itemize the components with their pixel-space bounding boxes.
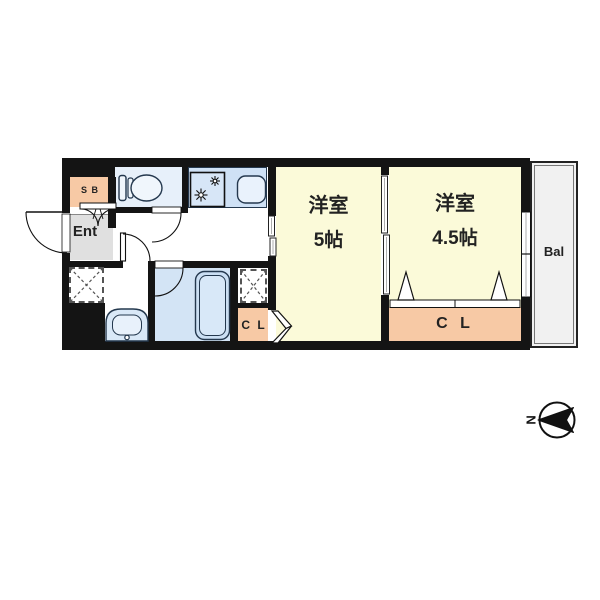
room-45-size: 4.5帖 xyxy=(389,229,521,248)
stove-icon xyxy=(191,173,225,207)
room-45-name: 洋室 xyxy=(389,194,521,214)
washbasin-icon xyxy=(106,309,148,341)
toilet-door-swing-icon xyxy=(152,207,181,242)
floor-plan: N S B Ent 洋室 5帖 洋室 4.5帖 C L C L Bal xyxy=(0,0,600,600)
room-5-size: 5帖 xyxy=(276,231,381,250)
room-5-name: 洋室 xyxy=(276,196,381,216)
plan-symbols-layer: N xyxy=(0,0,600,600)
shoe-box-label: S B xyxy=(68,186,112,195)
washing-machine-x-icon xyxy=(70,268,103,302)
balcony-label: Bal xyxy=(530,245,578,258)
sliding-door-hall-icon xyxy=(269,216,277,256)
bathroom-door-swing-icon xyxy=(155,261,183,296)
north-label: N xyxy=(524,415,539,424)
closet-large-label: C L xyxy=(389,316,521,332)
entrance-label: Ent xyxy=(64,224,106,239)
closet-small-bifold-icon xyxy=(272,311,292,343)
kitchen-sink-icon xyxy=(238,176,266,203)
bathtub-icon xyxy=(196,272,230,340)
washroom-door-swing-icon xyxy=(121,233,151,261)
north-compass-icon: N xyxy=(524,403,575,438)
closet-large-doors-icon xyxy=(390,272,520,308)
toilet-icon xyxy=(119,175,162,201)
refrigerator-x-icon xyxy=(241,270,266,302)
closet-small-label: C L xyxy=(235,319,273,331)
